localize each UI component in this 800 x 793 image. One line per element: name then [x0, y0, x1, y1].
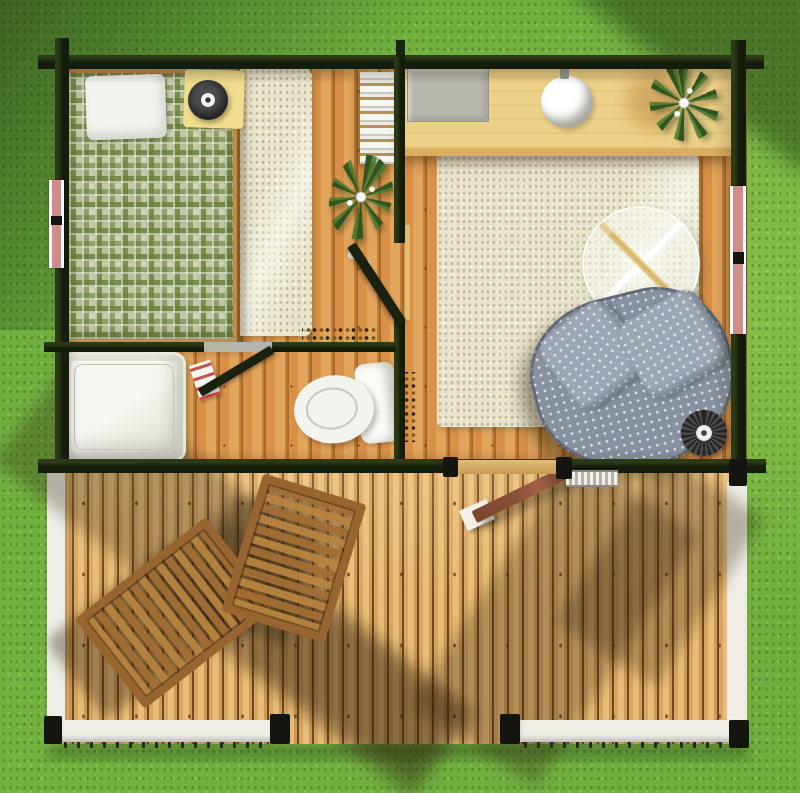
front-door-post: [443, 457, 458, 477]
shower-tray: [62, 352, 186, 462]
toilet: [290, 361, 404, 458]
wall-divider-lower: [394, 320, 405, 459]
window-latch: [733, 252, 744, 264]
wall-south: [38, 459, 766, 473]
cooktop: [407, 68, 489, 122]
window-latch: [51, 216, 62, 225]
deck-railing-left: [60, 720, 272, 742]
railing-balusters: [524, 742, 732, 748]
bed-pillow: [85, 74, 167, 141]
round-sink: [541, 76, 593, 128]
floor-fan: [681, 410, 727, 456]
deck-corner-post: [44, 716, 62, 744]
deck-post: [729, 459, 747, 486]
deck-post: [270, 714, 290, 744]
doormat: [566, 470, 618, 487]
shelf-stack: [360, 72, 397, 164]
railing-balusters: [64, 742, 268, 748]
wall-hooks-row: [302, 326, 378, 342]
deck-railing-right: [520, 720, 736, 742]
front-door-post: [556, 457, 572, 479]
front-door-threshold: [456, 460, 566, 474]
deck-corner-post: [729, 720, 749, 748]
wall-divider-upper: [394, 55, 405, 243]
log-end-stub: [396, 40, 405, 57]
deck-post: [500, 714, 520, 744]
table-fan: [188, 80, 228, 120]
divider-wall-trim: [405, 225, 410, 320]
cabin-floorplan-render: [0, 0, 800, 793]
sofa-base: [515, 271, 753, 490]
